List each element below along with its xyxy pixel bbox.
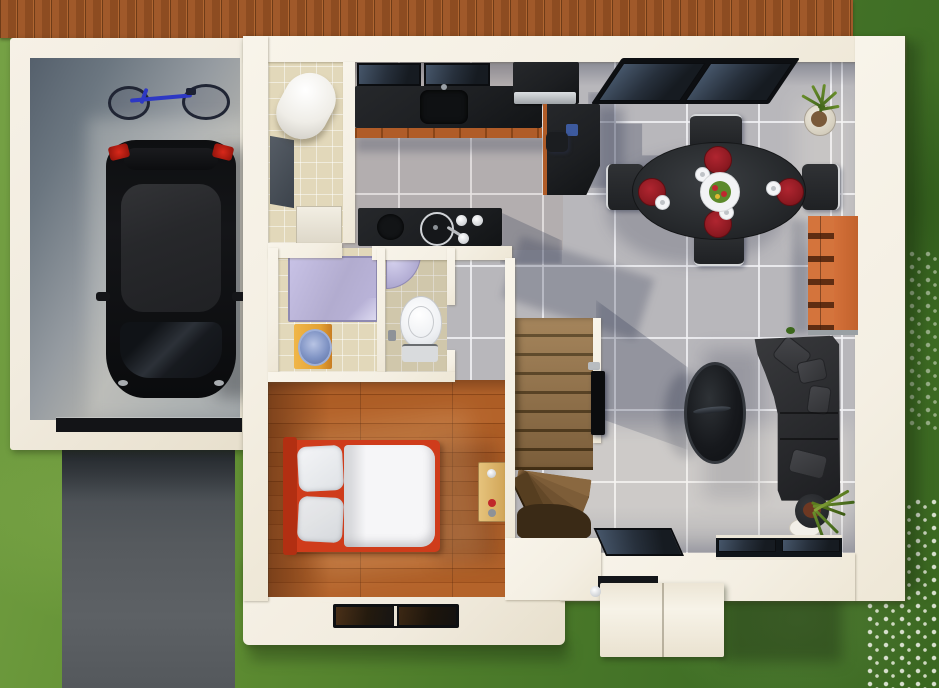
wall-bathroom-west — [268, 248, 278, 372]
cooker-hood-icon — [514, 92, 576, 104]
kitchen-window — [424, 63, 490, 86]
wall-utility-kitchen — [343, 62, 355, 243]
sink-faucet — [441, 84, 447, 90]
living-window-pane — [594, 528, 684, 556]
tv-bracket — [588, 362, 600, 370]
dining-table — [632, 142, 806, 240]
bicycle-seat — [186, 88, 196, 95]
frying-pan — [377, 214, 404, 240]
dining-plant — [790, 82, 850, 136]
pillow — [297, 445, 344, 492]
island-knob — [456, 215, 467, 226]
house-shadow-east — [903, 42, 919, 592]
driveway-shadow — [62, 450, 235, 502]
toilet-tank — [402, 344, 438, 362]
shelving-unit — [808, 216, 858, 334]
wall-stair-west — [505, 258, 515, 545]
shelf-base — [808, 330, 858, 335]
utility-cabinet — [296, 206, 342, 245]
wall-north — [243, 36, 905, 62]
kitchen-cabinet-front — [355, 128, 542, 138]
shelf-side-panel — [834, 216, 858, 330]
waste-bin — [388, 330, 396, 341]
kitchen-window — [357, 63, 421, 86]
salad — [709, 181, 731, 203]
wall-bedroom-north — [268, 372, 455, 382]
wall-west — [243, 36, 268, 601]
car-rear-window — [124, 148, 218, 170]
door-knob — [590, 586, 601, 597]
wall-stair-south-block — [505, 538, 601, 600]
wall-bathroom-north-left — [268, 243, 342, 258]
bedroom-desk — [478, 462, 508, 522]
wood-deck — [0, 0, 853, 38]
living-window — [716, 535, 842, 560]
window-pane — [718, 539, 776, 552]
desk-gray-item — [488, 509, 496, 517]
sofa-cushion — [806, 385, 832, 416]
vanity-basin — [298, 329, 332, 366]
tv — [591, 371, 605, 435]
stair-flight-shading — [515, 318, 593, 470]
red-placemat — [776, 178, 804, 206]
garage-floor — [30, 58, 240, 420]
wall-wc-east-upper — [447, 248, 455, 305]
kitchen-sink — [420, 90, 468, 124]
small-plant-item — [786, 327, 795, 334]
bedroom-window-frame — [333, 604, 459, 628]
salad-garnish — [715, 194, 720, 199]
plant-soil — [811, 111, 827, 127]
car — [106, 140, 236, 398]
blue-bin — [566, 124, 578, 136]
washing-machine — [270, 136, 294, 208]
tomato — [712, 185, 718, 191]
wall-wc-east-lower — [447, 350, 455, 372]
house-shadow-south — [250, 644, 568, 660]
bed — [283, 440, 440, 552]
island-knob — [458, 233, 469, 244]
bed-headboard — [283, 437, 297, 555]
staircase — [515, 318, 593, 540]
bathroom-partition — [280, 310, 292, 372]
shelf-cubbies — [808, 216, 834, 330]
car-roof — [121, 184, 221, 312]
car-headlight — [118, 380, 128, 386]
bedroom-window-pane — [336, 607, 393, 625]
stool — [546, 132, 568, 152]
desk-red-item — [488, 499, 496, 507]
dining-skylight-frame — [591, 58, 800, 104]
car-mirror — [96, 292, 110, 301]
window-pane — [782, 539, 840, 552]
garage-door — [56, 418, 242, 432]
sofa-seam — [780, 438, 838, 440]
centerpiece-plate — [700, 172, 740, 212]
dining-chair-east — [802, 164, 840, 210]
window-mullion — [394, 606, 397, 626]
saucer-with-cup — [766, 181, 781, 196]
stair-base-landing — [517, 504, 591, 540]
porch-canopy — [600, 583, 724, 657]
canopy-shadow — [724, 592, 842, 662]
wall-under-island — [372, 246, 512, 260]
sofa-cushion — [788, 448, 829, 480]
sofa-cushion — [796, 357, 828, 384]
car-headlight — [214, 380, 224, 386]
wall-bathroom-wc — [377, 248, 385, 372]
sofa-seam — [780, 412, 838, 414]
floor-plan-scene: 3D architectural rendering — top-down gr… — [0, 0, 939, 688]
bedroom-shadow-north — [268, 380, 512, 396]
desk-cup — [487, 469, 496, 478]
island-knob — [472, 215, 483, 226]
kitchen-island — [358, 208, 502, 246]
car-windshield — [120, 322, 222, 378]
toilet-seat — [408, 306, 434, 338]
saucer-with-cup — [655, 195, 670, 210]
shower — [288, 256, 378, 322]
bedroom-window-pane — [399, 607, 456, 625]
shelf-divider — [820, 216, 821, 330]
coffee-table — [684, 362, 746, 464]
burner-center — [433, 225, 438, 230]
pillow — [297, 496, 344, 543]
duvet — [344, 445, 435, 547]
tomato — [721, 191, 727, 197]
